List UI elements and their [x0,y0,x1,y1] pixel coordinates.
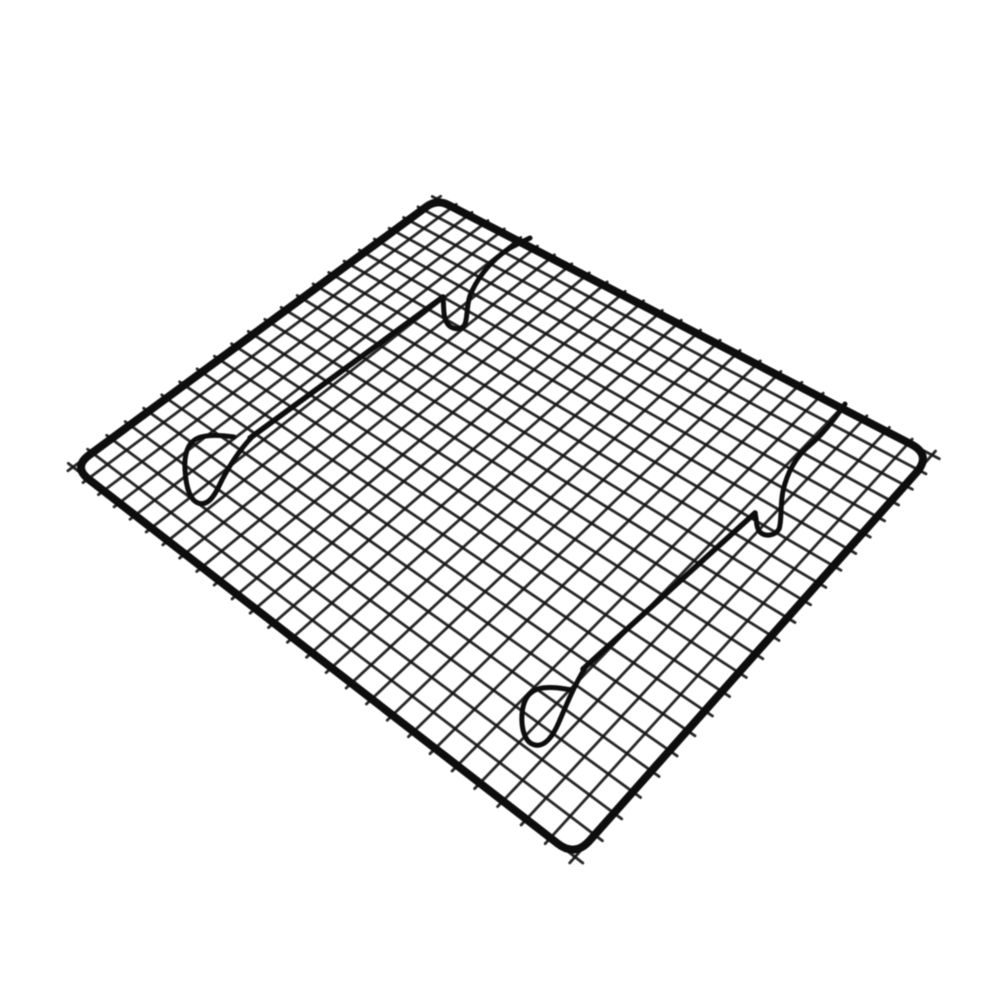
white-backdrop [0,0,1002,1002]
product-photo-canvas [0,0,1002,1002]
cooling-rack-image [0,0,1002,1002]
